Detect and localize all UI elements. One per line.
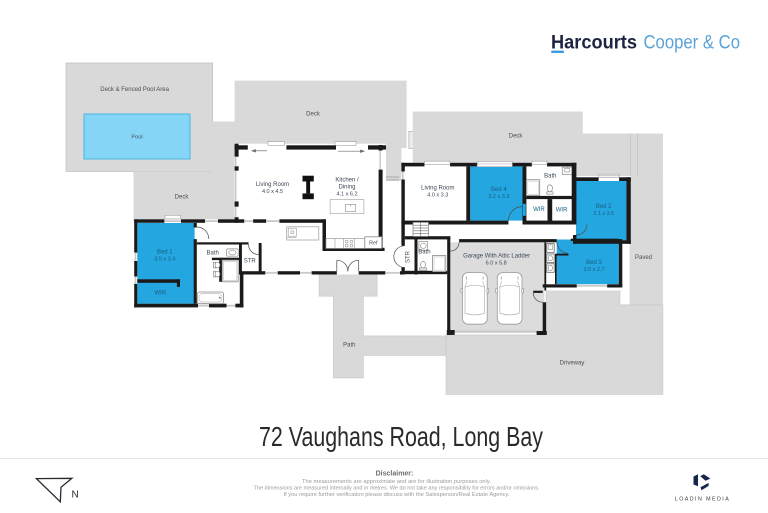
- svg-text:Driveway: Driveway: [560, 361, 585, 367]
- svg-text:4.0 x 4.5: 4.0 x 4.5: [262, 189, 283, 195]
- svg-text:WIR: WIR: [556, 208, 568, 214]
- svg-text:3.1 x 3.6: 3.1 x 3.6: [593, 211, 614, 217]
- svg-text:N: N: [72, 490, 79, 501]
- svg-text:4.0 x 3.3: 4.0 x 3.3: [427, 192, 448, 198]
- svg-text:4.1 x 6.2: 4.1 x 6.2: [336, 191, 357, 197]
- svg-text:Garage With Attic Ladder: Garage With Attic Ladder: [463, 253, 530, 259]
- svg-text:Bed 3: Bed 3: [586, 260, 602, 266]
- svg-text:Bath: Bath: [544, 174, 556, 180]
- svg-text:Living Room: Living Room: [421, 185, 454, 191]
- svg-text:Deck & Fenced Pool Area: Deck & Fenced Pool Area: [100, 87, 169, 93]
- svg-text:STR: STR: [244, 259, 257, 265]
- svg-text:Deck: Deck: [175, 194, 190, 200]
- svg-text:Living Room: Living Room: [256, 182, 289, 188]
- svg-text:Dining: Dining: [338, 184, 355, 190]
- svg-text:The measurements are approxima: The measurements are approximate and are…: [302, 479, 491, 485]
- svg-text:Kitchen /: Kitchen /: [335, 177, 359, 183]
- svg-text:STR: STR: [406, 250, 412, 263]
- svg-text:LOADIN MEDIA: LOADIN MEDIA: [675, 496, 730, 502]
- svg-text:Deck: Deck: [509, 133, 524, 139]
- svg-text:Disclaimer:: Disclaimer:: [376, 470, 414, 477]
- svg-text:3.5 x 3.4: 3.5 x 3.4: [154, 256, 175, 262]
- svg-text:Paved: Paved: [635, 255, 652, 261]
- svg-text:3.2 x 3.3: 3.2 x 3.3: [488, 194, 509, 200]
- svg-text:72 Vaughans Road, Long Bay: 72 Vaughans Road, Long Bay: [259, 421, 543, 452]
- svg-text:Bed 1: Bed 1: [157, 250, 173, 256]
- svg-text:Bed 4: Bed 4: [491, 187, 507, 193]
- svg-text:WIR: WIR: [154, 291, 166, 297]
- svg-text:WIR: WIR: [533, 207, 545, 213]
- svg-text:Bath: Bath: [207, 251, 219, 257]
- svg-text:6.0 x 5.8: 6.0 x 5.8: [486, 261, 507, 267]
- svg-text:If you require further verific: If you require further verification plea…: [284, 492, 510, 498]
- svg-text:The dimensions are measured in: The dimensions are measured internally a…: [254, 486, 540, 492]
- svg-text:3.0 x 2.7: 3.0 x 2.7: [583, 267, 604, 273]
- svg-text:Path: Path: [343, 342, 355, 348]
- svg-text:Deck: Deck: [306, 111, 321, 117]
- svg-text:Bath: Bath: [418, 250, 430, 256]
- svg-text:Ref: Ref: [369, 241, 378, 247]
- svg-text:Bed 2: Bed 2: [596, 204, 612, 210]
- svg-text:Cooper & Co: Cooper & Co: [644, 32, 741, 54]
- svg-text:Pool: Pool: [131, 135, 142, 141]
- svg-text:Harcourts: Harcourts: [551, 32, 637, 54]
